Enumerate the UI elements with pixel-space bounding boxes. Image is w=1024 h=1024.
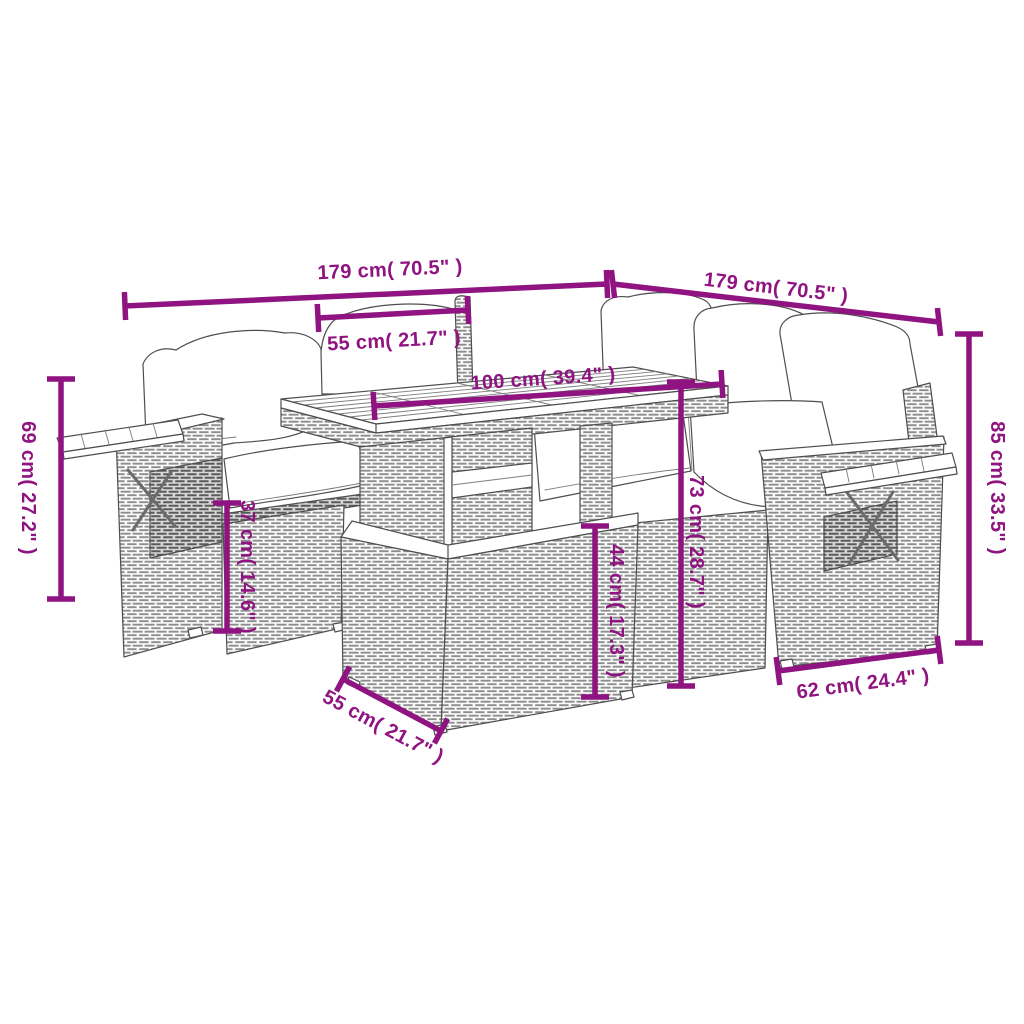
dimension-diagram: 179 cm( 70.5" ) 179 cm( 70.5" ) 55 cm( 2… — [0, 0, 1024, 1024]
dim-label-ottoman-height: 44 cm( 17.3" ) — [606, 544, 626, 678]
dim-label-total-height: 85 cm( 33.5" ) — [987, 421, 1007, 555]
dim-label-backrest-height: 69 cm( 27.2" ) — [18, 421, 38, 555]
dim-line-backrest-height — [47, 379, 75, 599]
dim-label-seat-height: 37 cm( 14.6" ) — [237, 500, 257, 634]
dim-line-total-height — [955, 334, 983, 643]
dim-label-table-height: 73 cm( 28.7" ) — [686, 475, 706, 609]
left-sofa — [57, 414, 368, 657]
furniture-line-drawing — [0, 0, 1024, 1024]
